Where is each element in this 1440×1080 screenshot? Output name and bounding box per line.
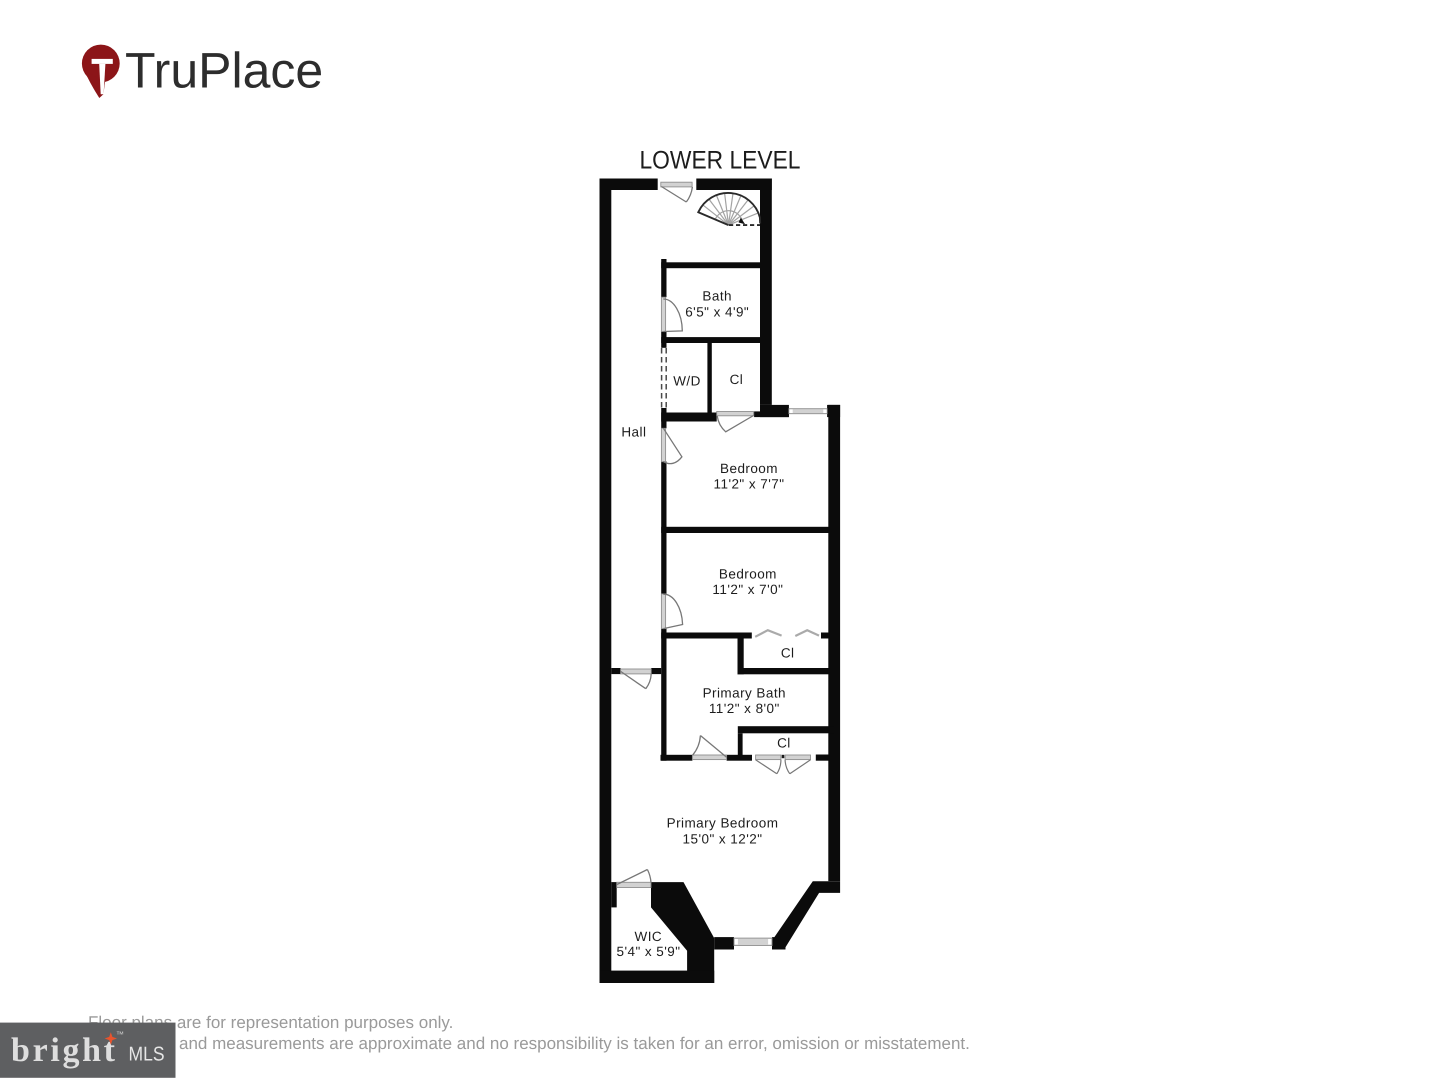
svg-text:Cl: Cl [777, 735, 791, 750]
svg-text:W/D: W/D [673, 373, 701, 388]
svg-text:™: ™ [116, 1030, 124, 1039]
svg-text:Bedroom: Bedroom [719, 566, 777, 581]
svg-text:Primary Bath: Primary Bath [703, 686, 786, 701]
svg-text:WIC: WIC [635, 929, 663, 944]
svg-text:Bedroom: Bedroom [720, 461, 778, 476]
svg-text:11'2" x 7'7": 11'2" x 7'7" [714, 476, 785, 491]
svg-text:Cl: Cl [781, 646, 795, 661]
svg-text:TruPlace: TruPlace [125, 43, 323, 99]
svg-text:11'2" x 8'0": 11'2" x 8'0" [709, 701, 780, 716]
svg-text:11'2" x 7'0": 11'2" x 7'0" [712, 582, 783, 597]
svg-text:5'4" x 5'9": 5'4" x 5'9" [617, 944, 681, 959]
svg-text:LOWER LEVEL: LOWER LEVEL [640, 147, 801, 175]
svg-text:Bath: Bath [702, 289, 732, 304]
svg-text:MLS: MLS [129, 1044, 165, 1066]
svg-text:6'5" x 4'9": 6'5" x 4'9" [685, 304, 749, 319]
svg-text:Cl: Cl [730, 372, 744, 387]
svg-text:Hall: Hall [621, 424, 646, 439]
svg-text:bright: bright [11, 1032, 116, 1069]
svg-text:and measurements are approxima: and measurements are approximate and no … [179, 1034, 970, 1053]
svg-text:15'0" x 12'2": 15'0" x 12'2" [683, 831, 763, 846]
svg-text:Primary Bedroom: Primary Bedroom [667, 816, 779, 831]
